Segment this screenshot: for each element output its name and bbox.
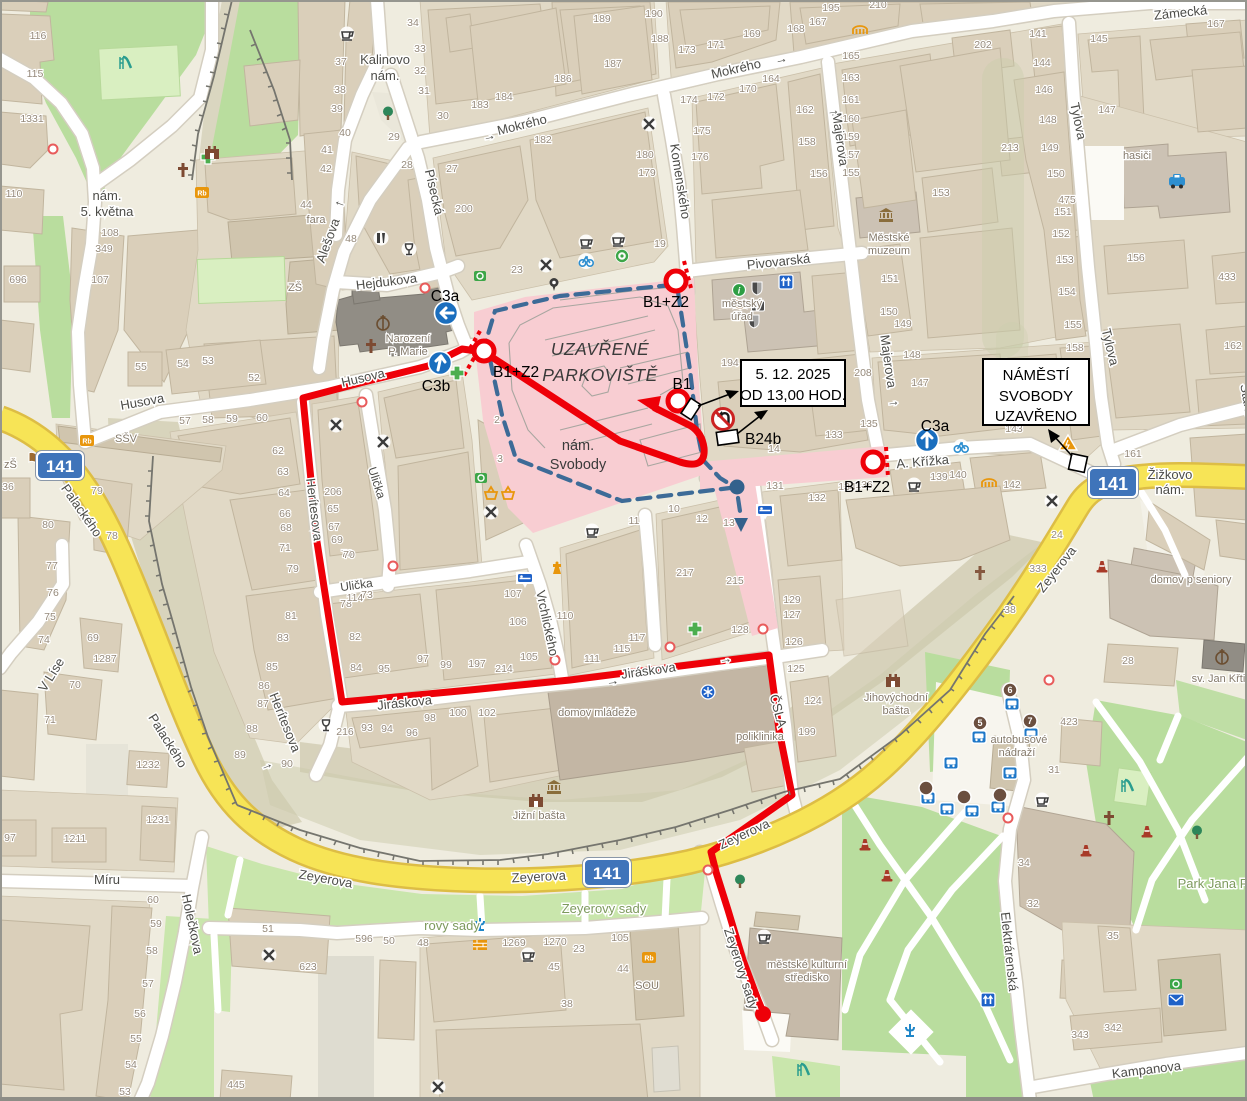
svg-text:151: 151 (1054, 206, 1072, 218)
svg-text:80: 80 (42, 519, 54, 531)
svg-text:170: 170 (739, 83, 757, 95)
svg-text:51: 51 (262, 923, 274, 935)
svg-text:28: 28 (1122, 655, 1134, 667)
svg-text:153: 153 (1056, 254, 1074, 266)
svg-text:Zeyerovy sady: Zeyerovy sady (562, 901, 647, 916)
svg-text:60: 60 (147, 894, 159, 906)
svg-text:176: 176 (691, 151, 709, 163)
svg-text:C3a: C3a (921, 418, 950, 435)
svg-text:SVOBODY: SVOBODY (999, 388, 1073, 405)
svg-text:182: 182 (534, 134, 552, 146)
svg-text:sv. Jan Křtit: sv. Jan Křtit (1192, 673, 1247, 685)
svg-text:202: 202 (974, 39, 992, 51)
svg-text:167: 167 (809, 16, 827, 28)
svg-text:24: 24 (1051, 529, 1063, 541)
svg-text:151: 151 (881, 273, 899, 285)
svg-text:36: 36 (2, 481, 14, 493)
svg-text:76: 76 (47, 587, 59, 599)
svg-text:141: 141 (1098, 474, 1128, 494)
svg-text:B1: B1 (673, 376, 692, 393)
svg-text:105: 105 (520, 651, 538, 663)
svg-text:B1+Z2: B1+Z2 (643, 294, 689, 311)
svg-text:77: 77 (46, 560, 58, 572)
svg-text:ZŠ: ZŠ (288, 281, 302, 294)
svg-text:343: 343 (1071, 1029, 1089, 1041)
svg-text:169: 169 (743, 28, 761, 40)
svg-text:45: 45 (548, 961, 560, 973)
svg-text:59: 59 (150, 918, 162, 930)
svg-text:úřad: úřad (731, 311, 753, 323)
svg-text:144: 144 (1033, 57, 1051, 69)
svg-text:1211: 1211 (64, 833, 87, 845)
svg-text:40: 40 (339, 127, 351, 139)
svg-text:206: 206 (324, 486, 342, 498)
svg-text:6: 6 (1007, 685, 1012, 695)
svg-text:213: 213 (1001, 142, 1019, 154)
svg-text:165: 165 (842, 50, 860, 62)
svg-text:117: 117 (629, 632, 646, 644)
svg-text:79: 79 (91, 485, 103, 497)
svg-text:164: 164 (762, 73, 780, 85)
svg-text:→: → (605, 672, 620, 689)
svg-text:183: 183 (471, 99, 489, 111)
svg-text:133: 133 (825, 429, 843, 441)
svg-text:53: 53 (202, 355, 214, 367)
svg-text:86: 86 (258, 680, 270, 692)
svg-text:78: 78 (106, 530, 118, 542)
svg-text:97: 97 (417, 653, 429, 665)
svg-text:74: 74 (38, 634, 50, 646)
svg-text:162: 162 (796, 104, 814, 116)
svg-text:1331: 1331 (20, 113, 44, 125)
svg-text:2: 2 (494, 414, 500, 426)
svg-text:38: 38 (1004, 604, 1016, 616)
svg-text:UZAVŘENO: UZAVŘENO (995, 408, 1077, 425)
svg-text:102: 102 (478, 707, 496, 719)
svg-text:nám.: nám. (1156, 482, 1185, 497)
svg-text:79: 79 (287, 563, 299, 575)
svg-text:149: 149 (1041, 142, 1059, 154)
svg-text:171: 171 (707, 39, 725, 51)
svg-text:140: 140 (949, 469, 967, 481)
svg-text:Park Jana P: Park Jana P (1178, 876, 1247, 891)
svg-text:125: 125 (787, 663, 805, 675)
svg-text:38: 38 (334, 84, 346, 96)
svg-text:83: 83 (277, 632, 289, 644)
svg-text:90: 90 (281, 758, 293, 770)
svg-text:147: 147 (1098, 104, 1116, 116)
svg-text:180: 180 (636, 149, 654, 161)
svg-text:zŠ: zŠ (4, 458, 17, 471)
svg-text:106: 106 (509, 616, 527, 628)
svg-text:161: 161 (842, 94, 860, 106)
svg-text:1269: 1269 (502, 937, 526, 949)
svg-text:116: 116 (30, 30, 47, 42)
svg-text:37: 37 (335, 56, 347, 68)
svg-text:54: 54 (125, 1059, 137, 1071)
svg-text:128: 128 (731, 624, 749, 636)
svg-text:95: 95 (378, 663, 390, 675)
svg-text:158: 158 (1066, 342, 1084, 354)
svg-text:190: 190 (645, 8, 663, 20)
svg-text:Svobody: Svobody (550, 457, 607, 473)
svg-text:městské kulturní: městské kulturní (767, 959, 847, 971)
svg-text:1231: 1231 (146, 814, 170, 826)
svg-text:161: 161 (1124, 448, 1142, 460)
svg-text:89: 89 (234, 749, 246, 761)
svg-text:433: 433 (1218, 271, 1236, 283)
svg-text:28: 28 (401, 159, 413, 171)
svg-text:32: 32 (1027, 898, 1039, 910)
svg-text:64: 64 (278, 487, 290, 499)
svg-text:Narození: Narození (386, 333, 431, 345)
svg-text:184: 184 (495, 91, 513, 103)
svg-text:126: 126 (785, 636, 803, 648)
svg-text:596: 596 (355, 933, 373, 945)
svg-text:1232: 1232 (136, 759, 160, 771)
svg-text:34: 34 (1018, 857, 1030, 869)
svg-text:99: 99 (440, 659, 452, 671)
svg-text:Kalinovo: Kalinovo (360, 52, 410, 67)
svg-text:Zeyerova: Zeyerova (511, 868, 567, 886)
svg-text:148: 148 (1039, 114, 1057, 126)
svg-text:100: 100 (449, 707, 467, 719)
svg-text:27: 27 (446, 163, 458, 175)
svg-text:150: 150 (1047, 168, 1065, 180)
svg-text:215: 215 (726, 575, 744, 587)
svg-text:129: 129 (783, 594, 801, 606)
svg-text:85: 85 (266, 661, 278, 673)
svg-text:108: 108 (101, 227, 119, 239)
svg-text:84: 84 (350, 662, 362, 674)
svg-text:29: 29 (388, 131, 400, 143)
svg-text:středisko: středisko (785, 972, 829, 984)
svg-text:66: 66 (279, 508, 291, 520)
svg-text:147: 147 (911, 377, 929, 389)
svg-text:107: 107 (504, 588, 522, 600)
svg-text:nádraží: nádraží (999, 747, 1036, 759)
svg-text:3: 3 (497, 453, 503, 465)
svg-text:35: 35 (1107, 930, 1119, 942)
svg-text:60: 60 (256, 412, 268, 424)
svg-text:71: 71 (279, 542, 291, 554)
svg-text:179: 179 (638, 167, 656, 179)
svg-text:Jižní bašta: Jižní bašta (513, 810, 566, 822)
svg-text:187: 187 (604, 58, 622, 70)
svg-text:23: 23 (573, 943, 585, 955)
svg-text:214: 214 (495, 663, 513, 675)
svg-text:475: 475 (1058, 194, 1076, 206)
svg-text:55: 55 (135, 361, 147, 373)
svg-text:domov mládeže: domov mládeže (558, 707, 636, 719)
svg-text:NÁMĚSTÍ: NÁMĚSTÍ (1003, 367, 1071, 384)
svg-text:97: 97 (4, 832, 16, 844)
svg-text:Žižkovo: Žižkovo (1148, 467, 1193, 482)
svg-text:nám.: nám. (371, 68, 400, 83)
svg-text:168: 168 (787, 23, 805, 35)
svg-text:5: 5 (977, 718, 982, 728)
svg-text:153: 153 (932, 187, 950, 199)
svg-text:44: 44 (617, 963, 629, 975)
svg-text:31: 31 (418, 85, 430, 97)
svg-text:54: 54 (177, 358, 189, 370)
svg-text:23: 23 (511, 264, 523, 276)
svg-text:75: 75 (44, 611, 56, 623)
svg-text:57: 57 (142, 978, 154, 990)
svg-text:696: 696 (9, 274, 27, 286)
svg-text:135: 135 (860, 418, 878, 430)
svg-text:98: 98 (424, 712, 436, 724)
svg-text:42: 42 (320, 163, 332, 175)
svg-text:65: 65 (327, 503, 339, 515)
svg-text:162: 162 (1224, 340, 1242, 352)
svg-text:68: 68 (280, 522, 292, 534)
svg-text:88: 88 (246, 723, 258, 735)
svg-text:173: 173 (678, 44, 696, 56)
svg-text:44: 44 (300, 199, 312, 211)
svg-text:48: 48 (417, 937, 429, 949)
svg-text:96: 96 (406, 727, 418, 739)
svg-text:Míru: Míru (94, 872, 120, 887)
svg-text:146: 146 (1035, 84, 1053, 96)
svg-text:1270: 1270 (543, 936, 567, 948)
svg-text:154: 154 (1058, 286, 1076, 298)
svg-text:141: 141 (1029, 28, 1047, 40)
svg-text:B1+Z2: B1+Z2 (493, 364, 539, 381)
svg-text:59: 59 (226, 413, 238, 425)
svg-text:141: 141 (46, 457, 74, 476)
svg-text:149: 149 (894, 318, 912, 330)
svg-text:nám.: nám. (562, 438, 594, 454)
svg-text:623: 623 (299, 961, 317, 973)
svg-text:349: 349 (95, 243, 113, 255)
svg-text:81: 81 (285, 610, 297, 622)
svg-text:7: 7 (1027, 716, 1032, 726)
svg-text:156: 156 (810, 168, 828, 180)
svg-text:11: 11 (629, 515, 640, 527)
svg-text:31: 31 (1048, 764, 1060, 776)
svg-text:342: 342 (1104, 1022, 1122, 1034)
svg-text:208: 208 (854, 367, 872, 379)
svg-text:139: 139 (930, 471, 948, 483)
svg-text:muzeum: muzeum (868, 245, 910, 257)
svg-text:195: 195 (822, 2, 840, 14)
svg-text:115: 115 (614, 643, 631, 655)
svg-text:bašta: bašta (883, 705, 911, 717)
svg-text:110: 110 (557, 610, 574, 622)
svg-text:145: 145 (1090, 33, 1108, 45)
svg-text:148: 148 (903, 349, 921, 361)
svg-text:87: 87 (257, 698, 269, 710)
svg-text:Městské: Městské (869, 232, 910, 244)
svg-text:poliklinika: poliklinika (736, 731, 785, 743)
svg-text:38: 38 (561, 998, 573, 1010)
svg-text:67: 67 (328, 521, 340, 533)
svg-text:50: 50 (383, 935, 395, 947)
svg-text:163: 163 (842, 72, 860, 84)
svg-text:32: 32 (414, 65, 426, 77)
svg-text:nám.: nám. (93, 188, 122, 203)
svg-text:1287: 1287 (93, 653, 117, 665)
svg-text:hasiči: hasiči (1123, 150, 1151, 162)
svg-text:105: 105 (611, 932, 629, 944)
svg-text:rovy sady: rovy sady (424, 918, 480, 933)
svg-text:189: 189 (593, 13, 611, 25)
svg-text:150: 150 (880, 306, 898, 318)
svg-text:30: 30 (437, 110, 449, 122)
svg-text:34: 34 (407, 17, 419, 29)
svg-text:19: 19 (654, 238, 666, 250)
svg-text:142: 142 (1003, 479, 1021, 491)
svg-text:131: 131 (766, 480, 784, 492)
svg-text:48: 48 (345, 233, 357, 245)
svg-text:městský: městský (722, 298, 763, 310)
svg-text:58: 58 (202, 414, 214, 426)
svg-text:111: 111 (584, 653, 600, 665)
svg-text:445: 445 (227, 1079, 245, 1091)
svg-text:39: 39 (331, 103, 343, 115)
svg-text:52: 52 (248, 372, 260, 384)
svg-text:141: 141 (593, 864, 621, 883)
svg-text:197: 197 (468, 658, 486, 670)
svg-text:167: 167 (1207, 18, 1225, 30)
svg-text:200: 200 (455, 203, 473, 215)
svg-text:5. května: 5. května (81, 204, 135, 219)
svg-text:124: 124 (804, 695, 822, 707)
svg-text:P. Marie: P. Marie (388, 346, 428, 358)
svg-text:127: 127 (783, 609, 801, 621)
svg-text:172: 172 (707, 91, 725, 103)
svg-text:33: 33 (414, 43, 426, 55)
svg-text:188: 188 (651, 33, 669, 45)
svg-text:Jihovýchodní: Jihovýchodní (864, 692, 928, 704)
svg-text:155: 155 (842, 167, 860, 179)
svg-text:194: 194 (721, 357, 739, 369)
svg-text:217: 217 (676, 567, 694, 579)
svg-text:158: 158 (798, 136, 816, 148)
svg-text:PARKOVIŠTĚ: PARKOVIŠTĚ (542, 364, 658, 385)
svg-text:5. 12. 2025: 5. 12. 2025 (755, 366, 830, 383)
svg-text:10: 10 (668, 503, 680, 515)
svg-text:57: 57 (179, 415, 191, 427)
svg-text:UZAVŘENÉ: UZAVŘENÉ (551, 339, 649, 359)
svg-text:69: 69 (331, 534, 343, 546)
svg-text:175: 175 (693, 125, 711, 137)
svg-text:186: 186 (554, 73, 572, 85)
svg-text:152: 152 (1052, 228, 1070, 240)
svg-text:12: 12 (696, 513, 708, 525)
svg-text:70: 70 (343, 549, 355, 561)
svg-text:58: 58 (146, 945, 158, 957)
svg-text:423: 423 (1060, 716, 1078, 728)
svg-text:SŠV: SŠV (115, 432, 138, 445)
svg-text:41: 41 (321, 144, 333, 156)
svg-text:107: 107 (91, 274, 109, 286)
svg-text:13: 13 (723, 517, 735, 529)
svg-text:OD 13,00 HOD.: OD 13,00 HOD. (740, 387, 846, 404)
svg-text:174: 174 (680, 94, 698, 106)
svg-text:115: 115 (27, 68, 44, 80)
svg-text:55: 55 (130, 1033, 142, 1045)
svg-text:155: 155 (1064, 319, 1082, 331)
svg-text:71: 71 (44, 714, 56, 726)
svg-text:69: 69 (87, 632, 99, 644)
svg-text:62: 62 (272, 445, 284, 457)
svg-text:autobusové: autobusové (991, 734, 1048, 746)
svg-text:216: 216 (336, 726, 354, 738)
svg-text:56: 56 (134, 1008, 146, 1020)
svg-text:70: 70 (69, 679, 81, 691)
svg-text:110: 110 (6, 188, 23, 200)
svg-text:156: 156 (1127, 252, 1145, 264)
svg-text:94: 94 (381, 723, 393, 735)
svg-text:C3b: C3b (422, 378, 450, 395)
svg-text:C3a: C3a (431, 288, 460, 305)
svg-text:132: 132 (808, 492, 826, 504)
svg-text:53: 53 (119, 1086, 131, 1098)
svg-text:199: 199 (798, 726, 816, 738)
svg-text:93: 93 (361, 722, 373, 734)
svg-text:fara: fara (307, 214, 327, 226)
svg-text:63: 63 (277, 466, 289, 478)
svg-text:domov p seniory: domov p seniory (1151, 574, 1232, 586)
svg-text:SOU: SOU (635, 980, 659, 992)
svg-text:B24b: B24b (745, 431, 781, 448)
svg-text:B1+Z2: B1+Z2 (844, 479, 890, 496)
svg-text:→: → (718, 650, 733, 667)
svg-text:82: 82 (349, 631, 361, 643)
